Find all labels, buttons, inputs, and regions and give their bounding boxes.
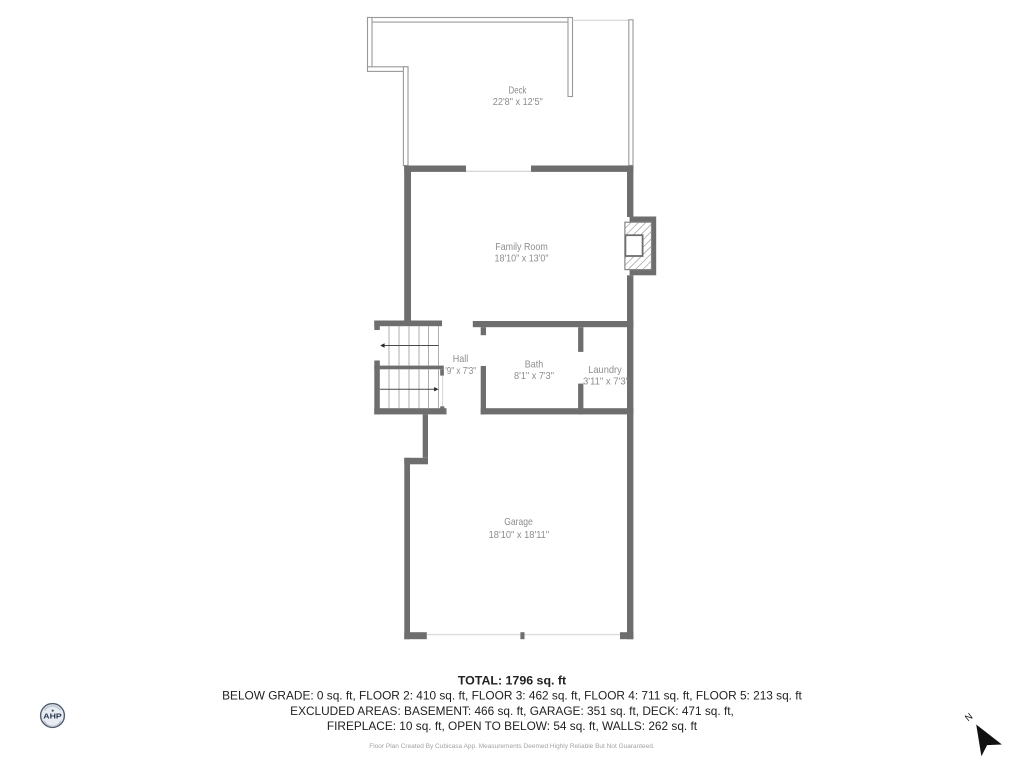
svg-text:18'10" x 18'11": 18'10" x 18'11" xyxy=(489,530,550,541)
svg-text:Floor Plan Created By Cubicasa: Floor Plan Created By Cubicasa App. Meas… xyxy=(369,743,655,750)
svg-text:Deck: Deck xyxy=(509,85,528,97)
svg-text:EXCLUDED AREAS: BASEMENT: 466: EXCLUDED AREAS: BASEMENT: 466 sq. ft, GA… xyxy=(290,704,734,718)
svg-text:AHP: AHP xyxy=(43,712,62,721)
svg-text:Bath: Bath xyxy=(525,359,544,371)
svg-text:Laundry: Laundry xyxy=(588,364,622,376)
svg-text:N: N xyxy=(963,711,974,723)
svg-text:Hall: Hall xyxy=(453,353,469,365)
svg-text:'9" x 7'3": '9" x 7'3" xyxy=(445,366,476,377)
svg-text:Family Room: Family Room xyxy=(495,241,548,253)
svg-text:FIREPLACE: 10 sq. ft, OPEN TO: FIREPLACE: 10 sq. ft, OPEN TO BELOW: 54 … xyxy=(327,719,698,733)
svg-text:8'1" x 7'3": 8'1" x 7'3" xyxy=(514,371,554,382)
svg-text:22'8" x 12'5": 22'8" x 12'5" xyxy=(493,97,543,108)
svg-text:18'10" x 13'0": 18'10" x 13'0" xyxy=(495,254,549,265)
svg-text:TOTAL: 1796 sq. ft: TOTAL: 1796 sq. ft xyxy=(458,674,566,688)
svg-text:Garage: Garage xyxy=(504,516,533,528)
svg-text:3'11" x 7'3": 3'11" x 7'3" xyxy=(583,377,629,388)
svg-text:BELOW GRADE: 0 sq. ft, FLOOR 2: BELOW GRADE: 0 sq. ft, FLOOR 2: 410 sq. … xyxy=(222,689,802,703)
